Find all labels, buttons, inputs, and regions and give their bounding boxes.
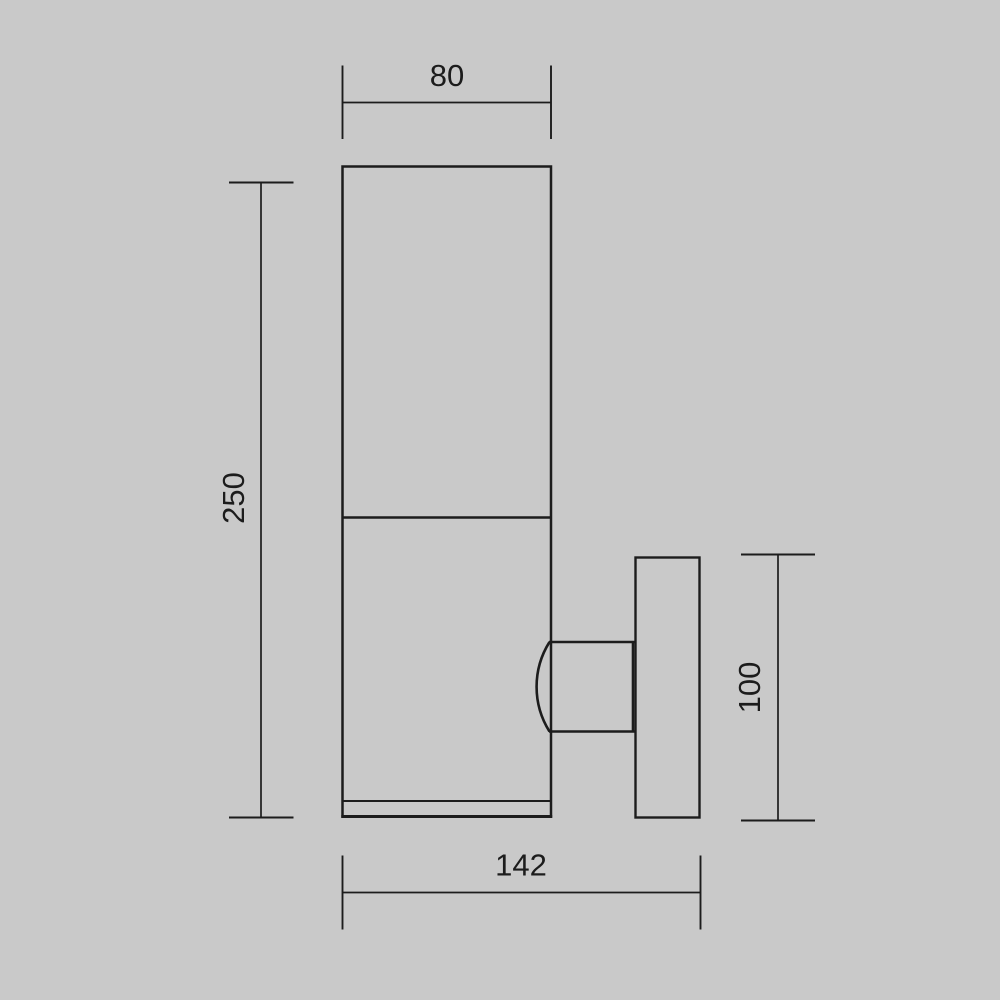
svg-text:80: 80	[430, 58, 464, 93]
svg-text:250: 250	[216, 472, 251, 524]
svg-text:142: 142	[495, 848, 547, 883]
svg-text:100: 100	[732, 662, 767, 714]
